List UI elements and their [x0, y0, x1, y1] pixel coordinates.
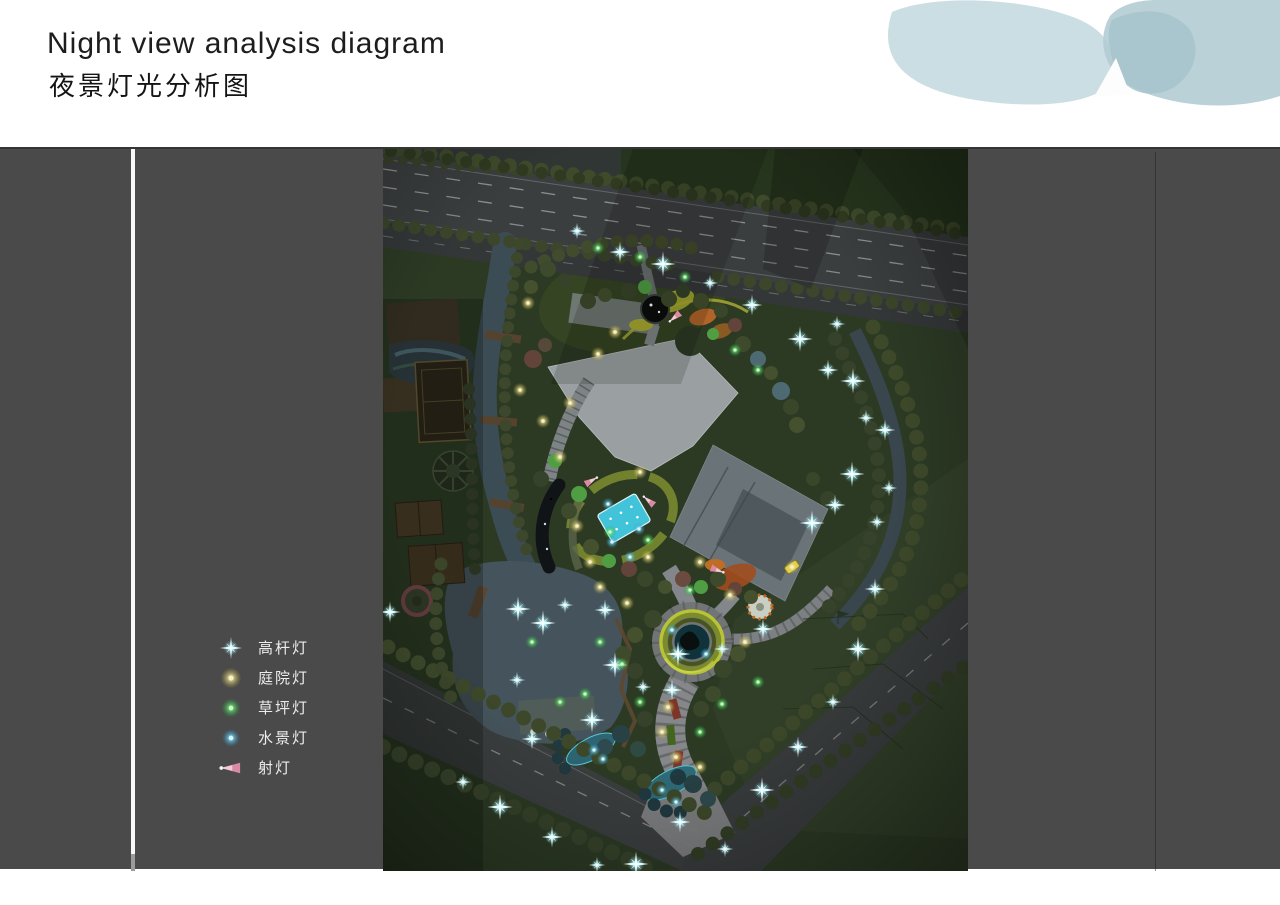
- light-water: [588, 744, 601, 757]
- light-courtyard: [633, 465, 647, 479]
- light-lawn: [578, 687, 592, 701]
- light-courtyard: [536, 414, 550, 428]
- light-courtyard: [785, 560, 799, 574]
- light-courtyard: [521, 296, 535, 310]
- high-pole-lamp-icon: [216, 635, 246, 661]
- light-lawn: [593, 635, 607, 649]
- light-water: [597, 753, 610, 766]
- light-courtyard: [553, 450, 567, 464]
- light-lawn: [715, 697, 729, 711]
- light-water: [670, 796, 683, 809]
- light-lawn: [641, 533, 655, 547]
- light-courtyard: [570, 519, 584, 533]
- light-water: [606, 536, 619, 549]
- light-lawn: [525, 635, 539, 649]
- light-lawn: [693, 725, 707, 739]
- content-panel: 高杆灯 庭院灯 草坪灯 水景灯 射灯: [0, 147, 1280, 869]
- light-courtyard: [620, 596, 634, 610]
- legend-label: 射灯: [258, 761, 292, 776]
- watercolor-decoration: [870, 0, 1280, 120]
- light-lawn: [751, 363, 765, 377]
- light-courtyard: [583, 555, 597, 569]
- light-courtyard: [723, 588, 737, 602]
- light-courtyard: [608, 325, 622, 339]
- light-courtyard: [661, 700, 675, 714]
- legend-label: 水景灯: [258, 731, 309, 746]
- light-lawn: [553, 695, 567, 709]
- light-lawn: [633, 250, 647, 264]
- light-courtyard: [693, 555, 707, 569]
- light-lawn: [678, 270, 692, 284]
- light-water: [624, 551, 637, 564]
- light-lawn: [728, 343, 742, 357]
- water-feature-lamp-icon: [216, 725, 246, 751]
- light-lawn: [591, 241, 605, 255]
- divider-stripe-footer: [131, 854, 135, 871]
- light-courtyard: [693, 760, 707, 774]
- light-courtyard: [513, 383, 527, 397]
- light-water: [602, 498, 615, 511]
- spotlight-icon: [216, 755, 246, 781]
- page-subtitle: 夜景灯光分析图: [49, 66, 252, 103]
- light-courtyard: [591, 347, 605, 361]
- legend-item-water: 水景灯: [216, 725, 309, 751]
- slide: Night view analysis diagram 夜景灯光分析图 高杆灯 …: [0, 0, 1280, 905]
- legend-label: 庭院灯: [258, 671, 309, 686]
- light-water: [700, 648, 713, 661]
- courtyard-lamp-icon: [216, 665, 246, 691]
- light-lawn: [751, 675, 765, 689]
- light-water: [656, 784, 669, 797]
- light-lawn: [683, 583, 697, 597]
- light-lawn: [633, 695, 647, 709]
- light-water: [666, 624, 679, 637]
- legend-label: 草坪灯: [258, 701, 309, 716]
- legend-item-spot: 射灯: [216, 755, 309, 781]
- divider-stripe: [131, 149, 135, 854]
- light-water: [633, 523, 646, 536]
- panel-seam: [1155, 152, 1156, 871]
- lawn-lamp-icon: [216, 695, 246, 721]
- lighting-legend: 高杆灯 庭院灯 草坪灯 水景灯 射灯: [216, 635, 309, 781]
- light-courtyard: [738, 635, 752, 649]
- light-courtyard: [593, 580, 607, 594]
- light-courtyard: [563, 396, 577, 410]
- light-courtyard: [655, 725, 669, 739]
- legend-item-lawn: 草坪灯: [216, 695, 309, 721]
- light-courtyard: [641, 550, 655, 564]
- legend-label: 高杆灯: [258, 641, 309, 656]
- site-plan-map: [383, 149, 968, 871]
- page-title: Night view analysis diagram: [47, 27, 446, 61]
- light-courtyard: [669, 750, 683, 764]
- light-lawn: [615, 657, 629, 671]
- legend-item-high-pole: 高杆灯: [216, 635, 309, 661]
- legend-item-courtyard: 庭院灯: [216, 665, 309, 691]
